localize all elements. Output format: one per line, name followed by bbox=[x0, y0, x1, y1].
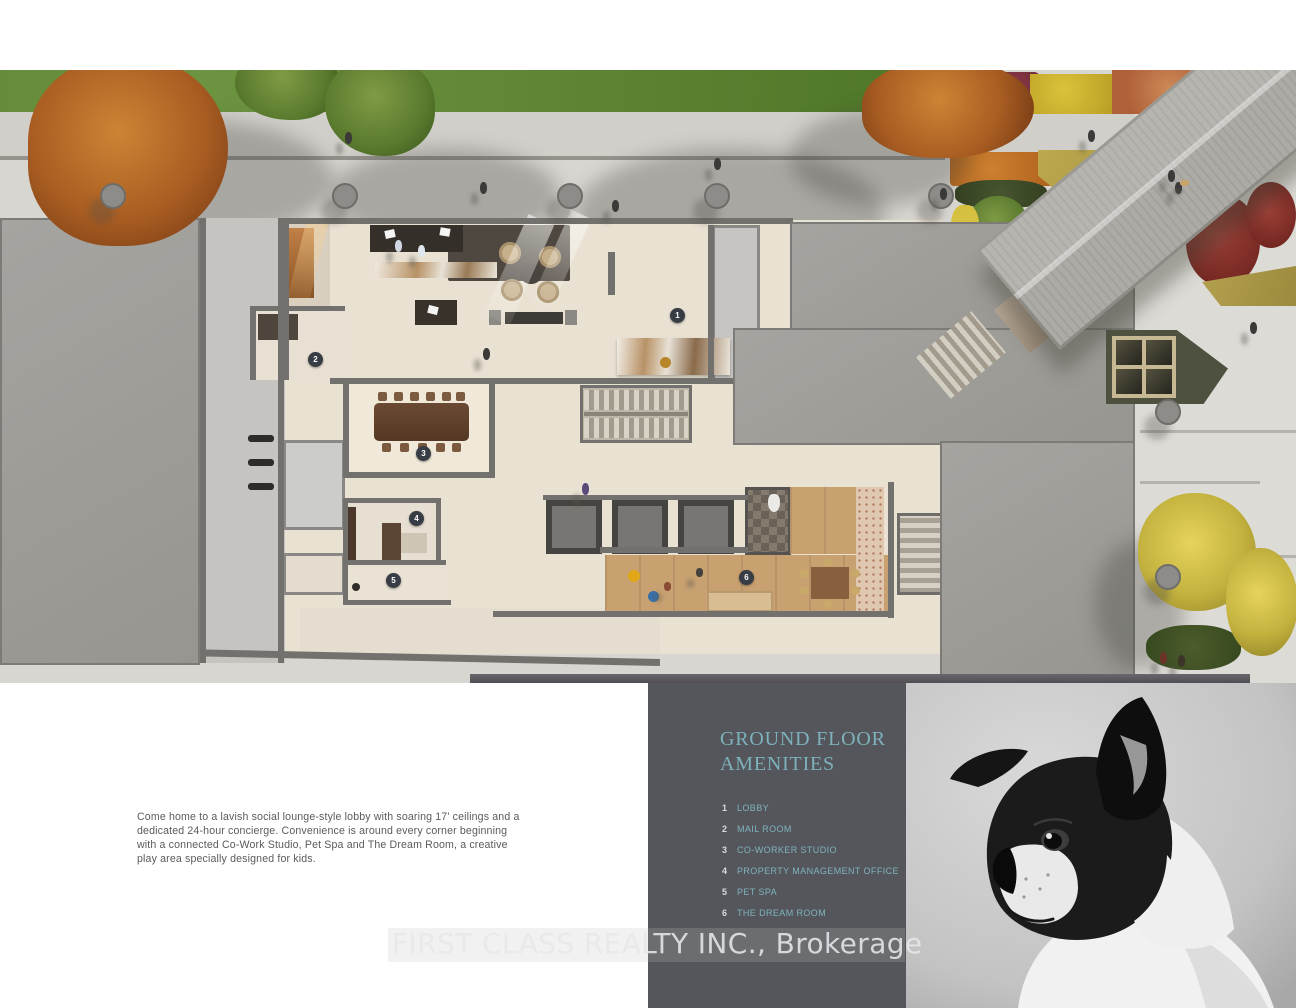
panel-title-line2: AMENITIES bbox=[720, 752, 886, 777]
puppy-photo bbox=[906, 683, 1296, 1008]
child-figure bbox=[696, 568, 703, 577]
legend-item: 5 PET SPA bbox=[648, 883, 906, 904]
person-figure bbox=[483, 348, 490, 360]
elevator-bank bbox=[546, 500, 746, 554]
person-figure bbox=[582, 483, 589, 495]
canopy-column bbox=[1155, 564, 1181, 590]
boardroom-chair bbox=[426, 392, 435, 401]
wall bbox=[436, 503, 441, 560]
dreamroom-wood-floor bbox=[790, 487, 858, 554]
wall bbox=[278, 218, 284, 663]
canopy-column bbox=[1155, 399, 1181, 425]
petspa-drain bbox=[352, 583, 360, 591]
legend-item-number: 2 bbox=[722, 824, 727, 834]
amenities-legend: 1 LOBBY 2 MAIL ROOM 3 CO-WORKER STUDIO 4… bbox=[648, 799, 906, 925]
wall bbox=[200, 218, 206, 663]
terrazzo-strip bbox=[856, 487, 884, 615]
boardroom-chair bbox=[410, 392, 419, 401]
slab-edge bbox=[470, 674, 1250, 683]
elevator-cab bbox=[678, 500, 734, 554]
muzzle-speckle bbox=[1024, 877, 1027, 880]
bike-rack bbox=[248, 483, 274, 490]
wall bbox=[343, 378, 349, 478]
wall bbox=[250, 306, 256, 380]
wall bbox=[330, 378, 793, 384]
stair-run bbox=[584, 418, 688, 438]
plan-marker-6: 6 bbox=[739, 570, 754, 585]
dining-chair bbox=[824, 600, 833, 609]
legend-item: 6 THE DREAM ROOM bbox=[648, 904, 906, 925]
child-figure bbox=[664, 582, 671, 591]
legend-item: 3 CO-WORKER STUDIO bbox=[648, 841, 906, 862]
puppy-eye-glint bbox=[1046, 833, 1052, 839]
wall bbox=[600, 547, 748, 553]
plan-marker-2: 2 bbox=[308, 352, 323, 367]
elevator-cab bbox=[546, 500, 602, 554]
wall bbox=[343, 600, 451, 605]
office-table bbox=[401, 533, 427, 553]
legend-item: 1 LOBBY bbox=[648, 799, 906, 820]
boardroom-chair bbox=[436, 443, 445, 452]
bar-stool bbox=[660, 357, 671, 368]
flower-bed-yellow bbox=[1030, 74, 1115, 114]
skylight-pane bbox=[1116, 369, 1142, 394]
toilet bbox=[768, 494, 780, 512]
legend-item: 4 PROPERTY MANAGEMENT OFFICE bbox=[648, 862, 906, 883]
left-building-roof bbox=[0, 218, 200, 665]
boardroom-chair bbox=[378, 392, 387, 401]
dog-figure bbox=[1180, 180, 1189, 186]
wall bbox=[708, 225, 714, 383]
wall bbox=[343, 472, 495, 478]
desk-paper bbox=[439, 227, 450, 237]
floor-plan-rendering: 1 2 3 4 5 6 bbox=[0, 70, 1296, 683]
toy-ball-blue bbox=[648, 591, 659, 602]
boardroom-chair bbox=[400, 443, 409, 452]
skylight-frame bbox=[1112, 336, 1176, 398]
legend-item-label: CO-WORKER STUDIO bbox=[737, 845, 837, 855]
legend-item-label: THE DREAM ROOM bbox=[737, 908, 826, 918]
wall bbox=[608, 252, 615, 295]
canopy-column bbox=[100, 183, 126, 209]
bike-rack bbox=[248, 435, 274, 442]
legend-item-number: 3 bbox=[722, 845, 727, 855]
office-desk bbox=[382, 523, 401, 561]
small-room bbox=[283, 553, 345, 595]
boardroom-chair bbox=[382, 443, 391, 452]
plan-marker-4: 4 bbox=[409, 511, 424, 526]
boardroom-chair bbox=[456, 392, 465, 401]
person-figure bbox=[940, 188, 947, 200]
brochure-page: 1 2 3 4 5 6 Come home to a lavish social… bbox=[0, 0, 1296, 1008]
person-figure bbox=[714, 158, 721, 170]
canopy-column bbox=[704, 183, 730, 209]
stair-core bbox=[580, 385, 692, 443]
boardroom-chair bbox=[442, 392, 451, 401]
panel-title-line1: GROUND FLOOR bbox=[720, 727, 886, 752]
canopy-column bbox=[557, 183, 583, 209]
wall bbox=[493, 611, 890, 617]
wall bbox=[283, 218, 793, 224]
legend-item-label: PROPERTY MANAGEMENT OFFICE bbox=[737, 866, 899, 876]
right-stairwell bbox=[897, 513, 943, 595]
kids-table bbox=[707, 591, 773, 612]
person-figure bbox=[395, 240, 402, 252]
plan-marker-5: 5 bbox=[386, 573, 401, 588]
wall bbox=[343, 560, 446, 565]
skylight-pane bbox=[1146, 369, 1172, 394]
dining-chair bbox=[851, 569, 860, 578]
person-figure bbox=[1088, 130, 1095, 142]
person-walking-dog bbox=[1168, 170, 1175, 182]
skylight-pane bbox=[1146, 340, 1172, 365]
muzzle-speckle bbox=[1022, 895, 1025, 898]
plan-marker-1: 1 bbox=[670, 308, 685, 323]
legend-item-number: 4 bbox=[722, 866, 727, 876]
person-figure bbox=[345, 132, 352, 144]
dining-chair bbox=[800, 586, 809, 595]
boardroom-chair bbox=[452, 443, 461, 452]
wall bbox=[888, 482, 894, 618]
walkway-joint bbox=[1140, 430, 1296, 433]
side-table bbox=[565, 310, 577, 325]
dining-chair bbox=[851, 586, 860, 595]
plan-marker-3: 3 bbox=[416, 446, 431, 461]
legend-item-number: 6 bbox=[722, 908, 727, 918]
boardroom-chair bbox=[394, 392, 403, 401]
person-figure bbox=[1160, 652, 1167, 664]
toy-ball-yellow bbox=[628, 570, 640, 582]
person-figure bbox=[480, 182, 487, 194]
dining-chair bbox=[824, 558, 833, 567]
wall bbox=[489, 378, 495, 478]
dark-shrubs bbox=[1146, 625, 1241, 670]
person-figure bbox=[1178, 655, 1185, 667]
watermark-text: FIRST CLASS REALTY INC., Brokerage bbox=[392, 927, 923, 960]
wall bbox=[543, 495, 748, 500]
storage-rooms bbox=[283, 440, 345, 530]
legend-item-label: LOBBY bbox=[737, 803, 769, 813]
person-figure bbox=[418, 245, 425, 257]
walkway-joint bbox=[1140, 481, 1260, 484]
legend-item-label: PET SPA bbox=[737, 887, 777, 897]
reception-counter bbox=[375, 262, 497, 278]
dining-table bbox=[811, 567, 849, 599]
elevator-cab bbox=[612, 500, 668, 554]
skylight-pane bbox=[1116, 340, 1142, 365]
person-figure bbox=[612, 200, 619, 212]
wall bbox=[343, 498, 348, 605]
puppy-illustration bbox=[906, 683, 1296, 1008]
muzzle-speckle bbox=[1046, 873, 1049, 876]
stair-run bbox=[584, 390, 688, 410]
legend-item-number: 5 bbox=[722, 887, 727, 897]
muzzle-speckle bbox=[1038, 887, 1041, 890]
legend-item-label: MAIL ROOM bbox=[737, 824, 792, 834]
person-figure bbox=[1250, 322, 1257, 334]
legend-item: 2 MAIL ROOM bbox=[648, 820, 906, 841]
stair-rail bbox=[584, 412, 688, 416]
legend-item-number: 1 bbox=[722, 803, 727, 813]
yellow-tree bbox=[1226, 548, 1296, 656]
wall bbox=[343, 498, 441, 503]
canopy-column bbox=[332, 183, 358, 209]
dining-chair bbox=[800, 569, 809, 578]
panel-title: GROUND FLOOR AMENITIES bbox=[720, 727, 886, 777]
wall bbox=[250, 306, 345, 311]
red-hedge bbox=[1246, 182, 1296, 248]
description-paragraph: Come home to a lavish social lounge-styl… bbox=[137, 810, 525, 867]
bike-rack bbox=[248, 459, 274, 466]
boardroom-table bbox=[374, 403, 469, 441]
